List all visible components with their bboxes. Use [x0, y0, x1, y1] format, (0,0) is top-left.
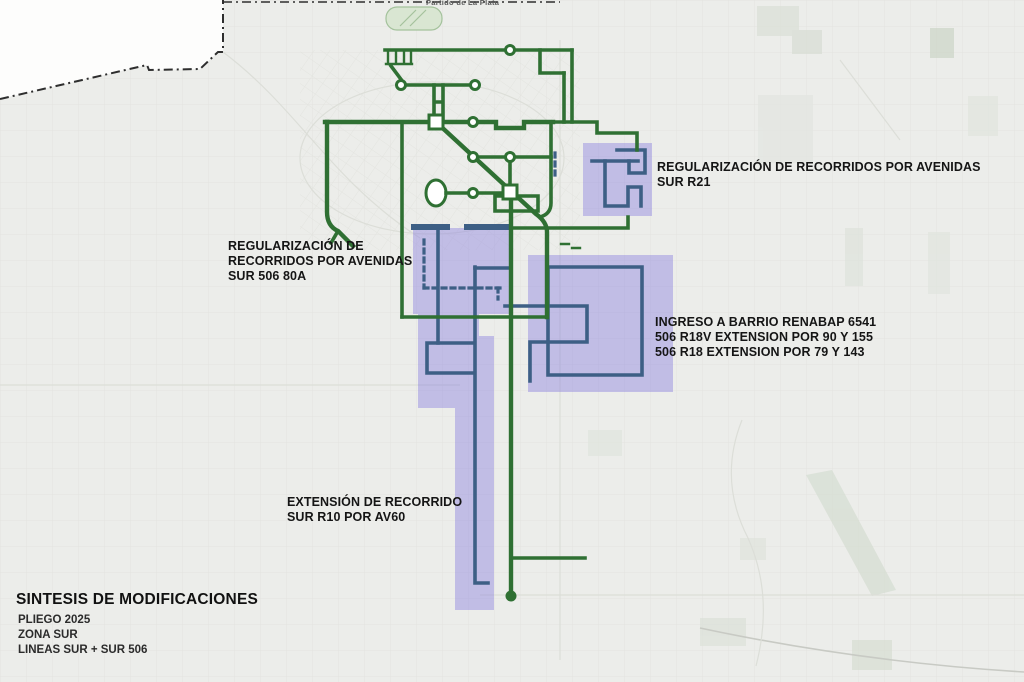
annotation-renabap: INGRESO A BARRIO RENABAP 6541 506 R18V E…: [655, 315, 876, 359]
annotation-renabap-line3: 506 R18 EXTENSION POR 79 Y 143: [655, 345, 876, 360]
legend-line-lineas: LINEAS SUR + SUR 506: [18, 643, 258, 658]
legend-title: SINTESIS DE MODIFICACIONES: [16, 591, 258, 609]
annotation-sur506-line3: SUR 506 80A: [228, 269, 412, 284]
map-screenshot: Partido de La Plata REGULARIZACIÓN DE RE…: [0, 0, 1024, 682]
annotation-r21-line1: REGULARIZACIÓN DE RECORRIDOS POR AVENIDA…: [657, 160, 981, 175]
annotation-r10-line1: EXTENSIÓN DE RECORRIDO: [287, 495, 462, 510]
legend-line-pliego: PLIEGO 2025: [18, 613, 258, 628]
annotation-r21-line2: SUR R21: [657, 175, 981, 190]
annotation-renabap-line2: 506 R18V EXTENSION POR 90 Y 155: [655, 330, 876, 345]
region-label: Partido de La Plata: [426, 0, 499, 7]
annotation-renabap-line1: INGRESO A BARRIO RENABAP 6541: [655, 315, 876, 330]
stadium-area: [386, 7, 442, 30]
annotation-r10-line2: SUR R10 POR AV60: [287, 510, 462, 525]
legend-line-zona: ZONA SUR: [18, 628, 258, 643]
highlight-zone-sur506: [413, 228, 510, 314]
legend-block: SINTESIS DE MODIFICACIONES PLIEGO 2025 Z…: [16, 591, 258, 658]
annotation-sur506-line1: REGULARIZACIÓN DE: [228, 239, 412, 254]
annotation-r10: EXTENSIÓN DE RECORRIDO SUR R10 POR AV60: [287, 495, 462, 525]
annotation-sur506: REGULARIZACIÓN DE RECORRIDOS POR AVENIDA…: [228, 239, 412, 283]
annotation-sur506-line2: RECORRIDOS POR AVENIDAS: [228, 254, 412, 269]
annotation-r21: REGULARIZACIÓN DE RECORRIDOS POR AVENIDA…: [657, 160, 981, 190]
